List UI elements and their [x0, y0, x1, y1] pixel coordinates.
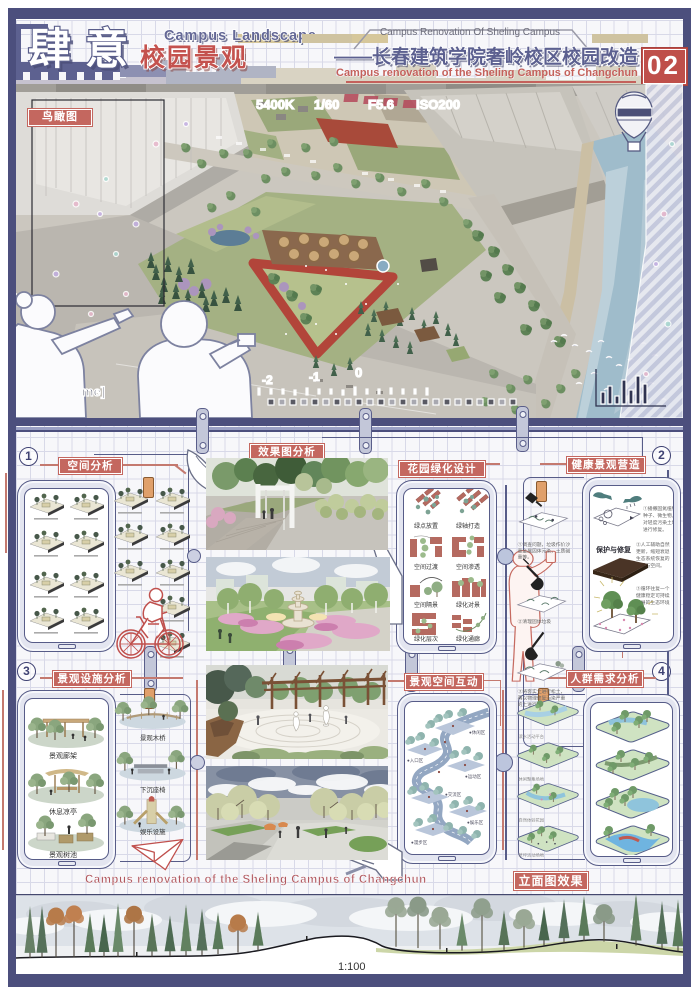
svg-text:1:100: 1:100 — [338, 961, 366, 973]
svg-text:0: 0 — [355, 365, 362, 380]
svg-text:ISO200: ISO200 — [416, 97, 460, 112]
svg-text:对轻度污染土壤: 对轻度污染土壤 — [643, 519, 674, 526]
svg-text:绿化层次: 绿化层次 — [414, 635, 438, 643]
svg-text:F5.6: F5.6 — [368, 97, 394, 112]
svg-text:空间过渡: 空间过渡 — [414, 563, 438, 571]
svg-text:健康稳定可持续: 健康稳定可持续 — [636, 592, 670, 599]
svg-text:下沉座椅: 下沉座椅 — [140, 785, 166, 794]
svg-text:肆意: 肆意 — [28, 26, 142, 74]
svg-text:5400K: 5400K — [256, 97, 295, 112]
svg-text:绿化对景: 绿化对景 — [456, 601, 480, 609]
svg-text:保护与修复: 保护与修复 — [595, 545, 632, 554]
svg-text:空间渗透: 空间渗透 — [456, 563, 480, 571]
svg-text:-2: -2 — [262, 373, 273, 387]
svg-text:种子、微生物，: 种子、微生物， — [643, 512, 674, 519]
svg-text:●运动区: ●运动区 — [465, 773, 482, 780]
svg-text:●入口区: ●入口区 — [407, 758, 424, 764]
svg-text:草坪活动场地: 草坪活动场地 — [519, 851, 545, 858]
svg-text:●交流区: ●交流区 — [445, 791, 462, 798]
svg-text:滨水活动平台: 滨水活动平台 — [519, 733, 545, 740]
svg-text:绿点放置: 绿点放置 — [414, 522, 438, 530]
svg-text:绿轴打造: 绿轴打造 — [456, 522, 480, 530]
svg-text:生态系统恢复的: 生态系统恢复的 — [636, 555, 670, 562]
svg-text:●漫步区: ●漫步区 — [411, 839, 428, 846]
svg-text:③循环往复一个: ③循环往复一个 — [636, 585, 670, 592]
svg-text:1/60: 1/60 — [314, 97, 339, 112]
svg-text:②清理固体垃圾: ②清理固体垃圾 — [518, 618, 552, 625]
svg-text:休闲聚集场地: 休闲聚集场地 — [519, 776, 545, 783]
svg-text:休息凉亭: 休息凉亭 — [49, 807, 77, 816]
svg-text:——长春建筑学院奢岭校区校园改造: ——长春建筑学院奢岭校区校园改造 — [334, 45, 639, 68]
svg-text:娱乐设施: 娱乐设施 — [140, 827, 166, 836]
svg-text:重金属固体污染，土质碱: 重金属固体污染，土质碱 — [518, 547, 571, 554]
svg-text:空间隔景: 空间隔景 — [414, 601, 438, 609]
svg-text:景观木桥: 景观木桥 — [140, 733, 166, 742]
svg-text:②人工辅助自然: ②人工辅助自然 — [636, 541, 670, 548]
svg-text:自然体验花园: 自然体验花园 — [519, 816, 545, 823]
svg-text:校园景观: 校园景观 — [140, 43, 248, 72]
svg-text:①调查问题，垃圾作价沙: ①调查问题，垃圾作价沙 — [518, 541, 571, 548]
svg-text:景观廊架: 景观廊架 — [49, 751, 77, 760]
svg-text:更新，缩短衰退: 更新，缩短衰退 — [636, 548, 670, 555]
svg-text:●娱乐区: ●娱乐区 — [467, 819, 484, 826]
svg-text:景观树池: 景观树池 — [49, 850, 77, 859]
svg-text:me]: me] — [82, 384, 105, 399]
svg-text:-1: -1 — [309, 370, 320, 384]
svg-text:①播撒固氮植物: ①播撒固氮植物 — [643, 505, 674, 512]
svg-text:●休闲区: ●休闲区 — [469, 729, 486, 736]
svg-text:进行修复。: 进行修复。 — [643, 526, 667, 533]
svg-text:绿化通廊: 绿化通廊 — [456, 635, 480, 643]
